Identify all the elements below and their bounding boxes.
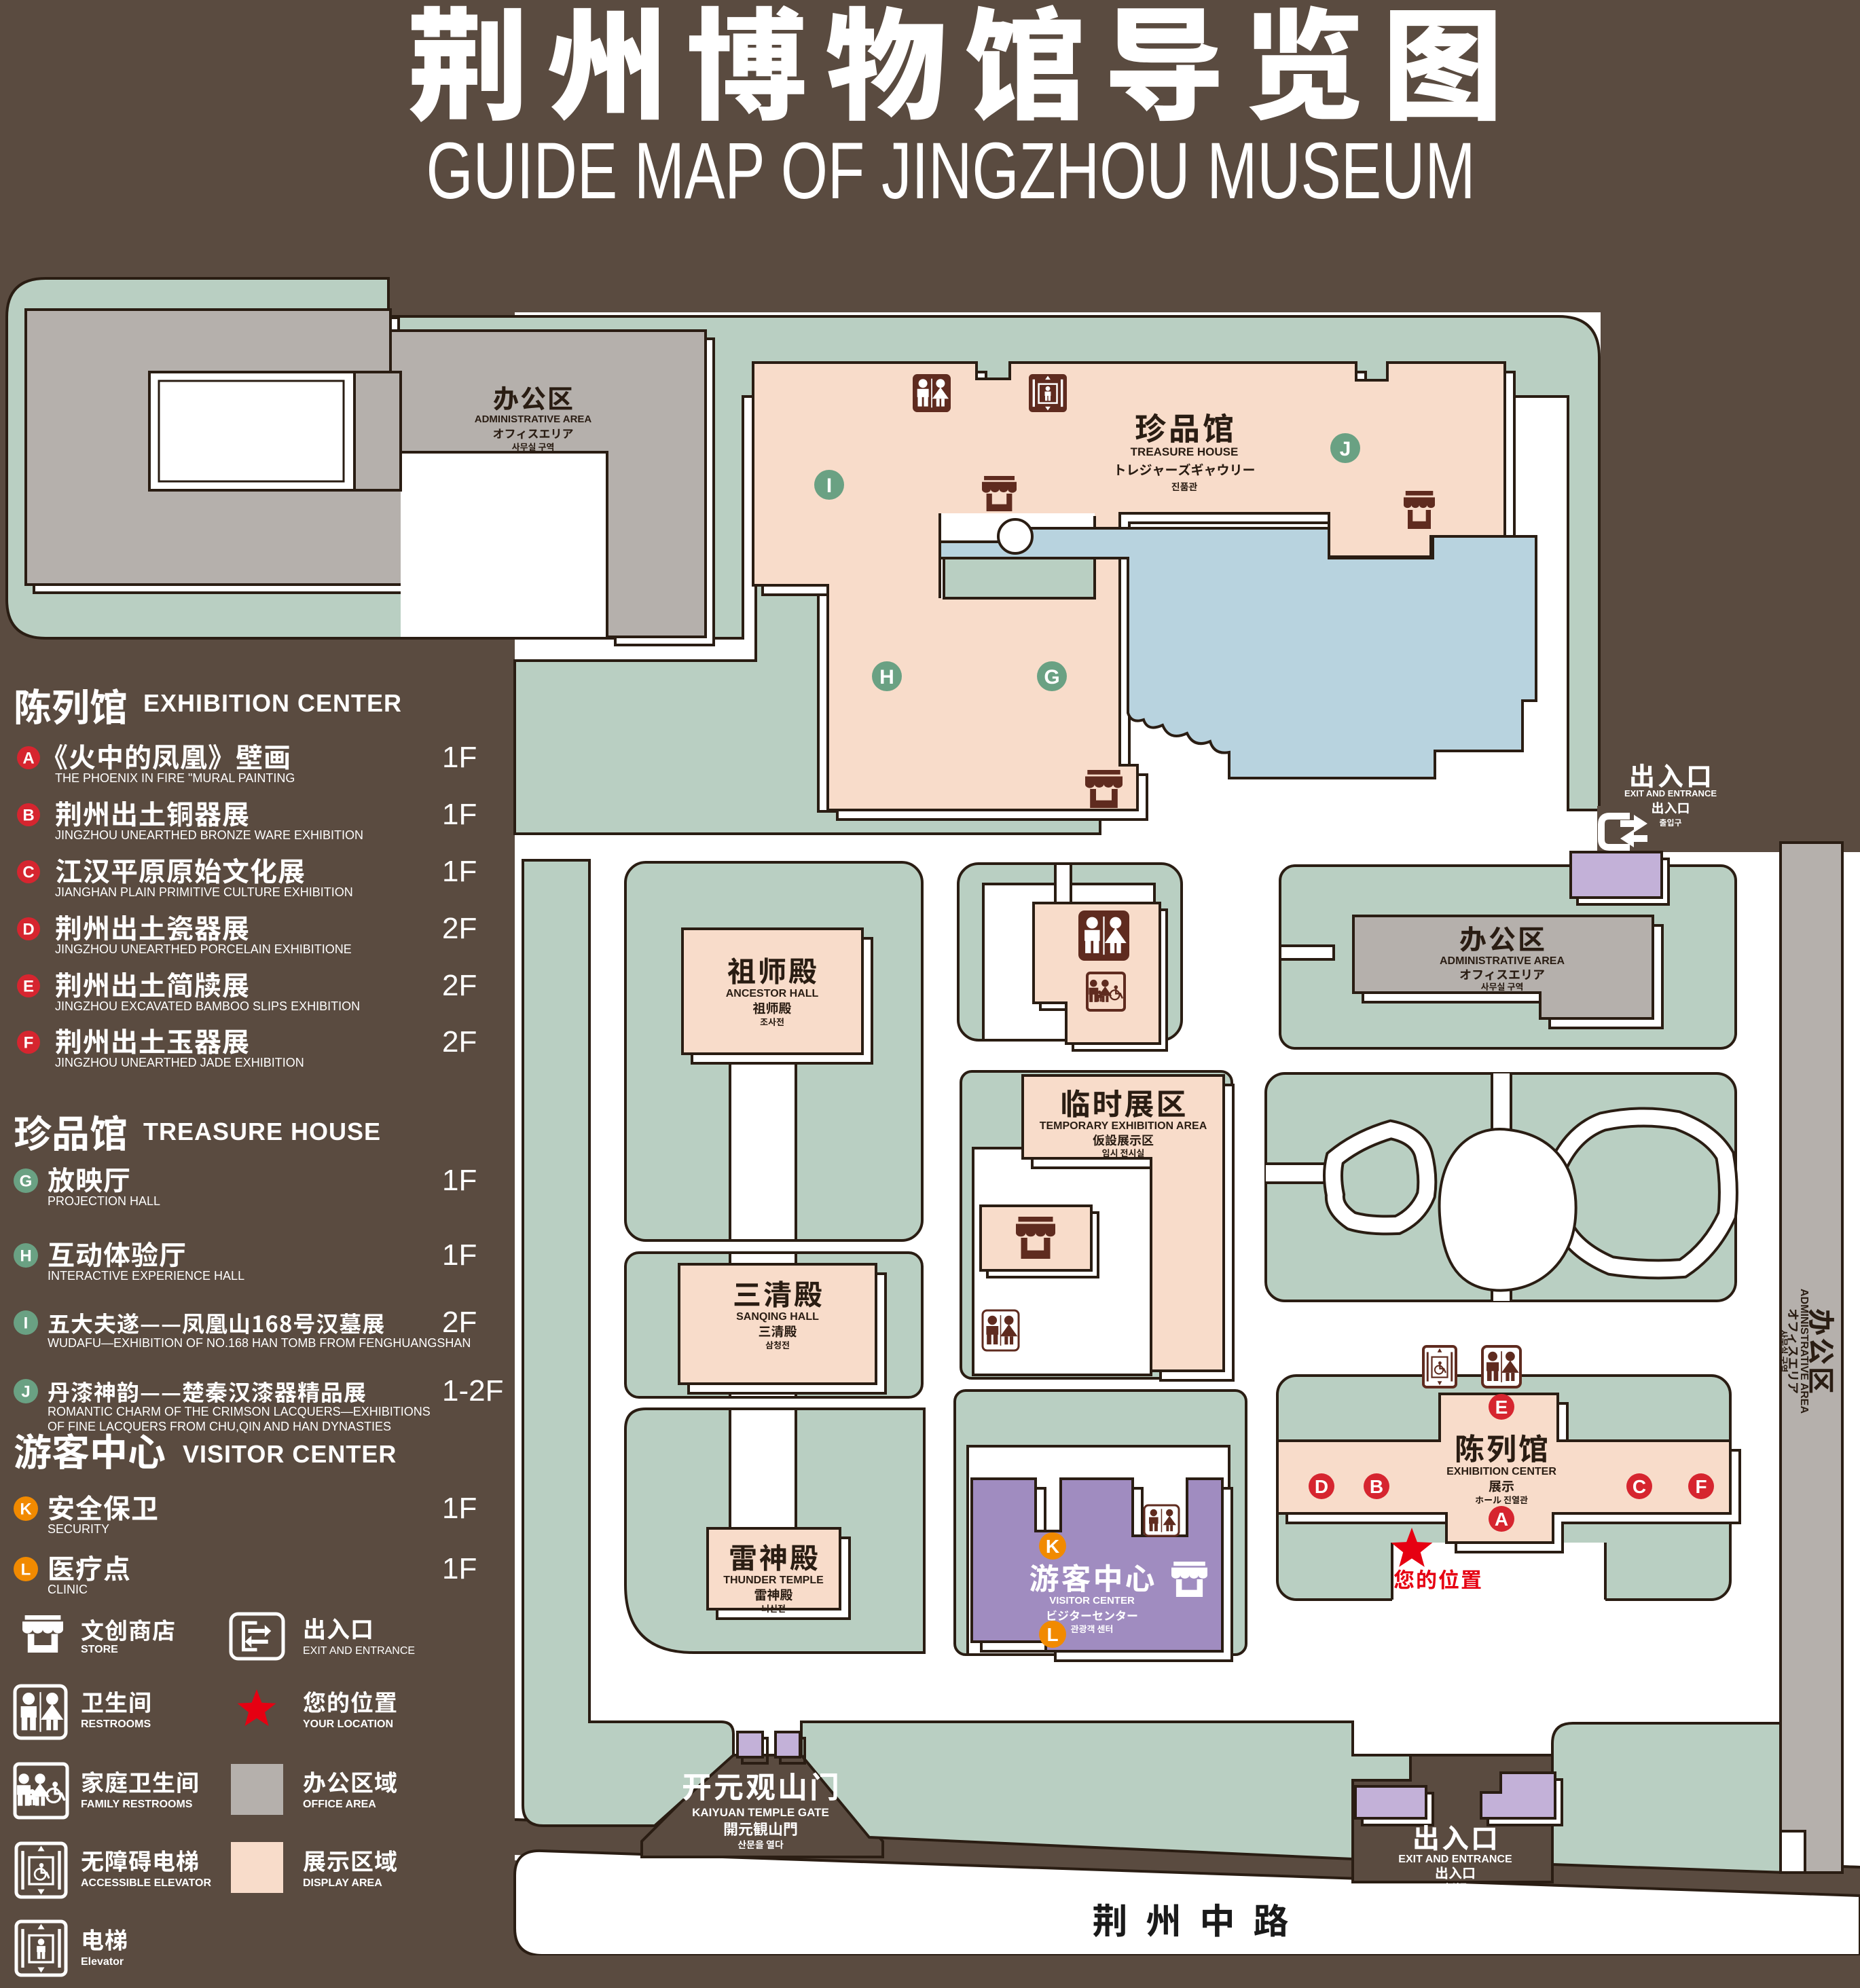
svg-text:E: E xyxy=(23,978,34,996)
svg-text:I: I xyxy=(826,475,832,497)
svg-text:YOUR LOCATION: YOUR LOCATION xyxy=(303,1718,393,1730)
svg-text:J: J xyxy=(21,1383,30,1401)
svg-text:ADMINISTRATIVE AREA: ADMINISTRATIVE AREA xyxy=(1798,1289,1810,1414)
svg-text:ROMANTIC CHARM OF THE CRIMSON: ROMANTIC CHARM OF THE CRIMSON LACQUERS—E… xyxy=(48,1405,431,1418)
svg-text:PROJECTION HALL: PROJECTION HALL xyxy=(48,1194,160,1208)
svg-text:JINGZHOU UNEARTHED JADE EXHIBI: JINGZHOU UNEARTHED JADE EXHIBITION xyxy=(55,1056,304,1069)
svg-text:H: H xyxy=(879,666,894,688)
svg-text:OFFICE AREA: OFFICE AREA xyxy=(303,1799,376,1810)
svg-text:1F: 1F xyxy=(442,741,477,774)
svg-text:1F: 1F xyxy=(442,1552,477,1585)
svg-text:EXHIBITION CENTER: EXHIBITION CENTER xyxy=(143,689,402,717)
svg-text:G: G xyxy=(20,1173,33,1191)
svg-text:K: K xyxy=(20,1501,32,1519)
svg-text:E: E xyxy=(1495,1397,1508,1418)
svg-text:EXIT AND ENTRANCE: EXIT AND ENTRANCE xyxy=(1624,788,1717,798)
svg-text:1F: 1F xyxy=(442,855,477,888)
svg-text:JINGZHOU UNEARTHED PORCELAIN E: JINGZHOU UNEARTHED PORCELAIN EXHIBITIONE xyxy=(55,942,352,956)
svg-text:Elevator: Elevator xyxy=(81,1956,124,1968)
svg-text:J: J xyxy=(1340,438,1351,460)
svg-text:1F: 1F xyxy=(442,1238,477,1272)
svg-text:K: K xyxy=(1046,1536,1059,1557)
svg-text:THE PHOENIX IN FIRE "MURAL PAI: THE PHOENIX IN FIRE "MURAL PAINTING xyxy=(55,771,295,785)
svg-text:EXIT AND ENTRANCE: EXIT AND ENTRANCE xyxy=(303,1645,415,1657)
svg-text:C: C xyxy=(22,864,34,882)
svg-text:WUDAFU—EXHIBITION OF NO.168 HA: WUDAFU—EXHIBITION OF NO.168 HAN TOMB FRO… xyxy=(48,1336,471,1350)
svg-text:1-2F: 1-2F xyxy=(442,1374,503,1407)
svg-text:I: I xyxy=(24,1314,29,1333)
svg-text:SANQING HALL: SANQING HALL xyxy=(736,1311,819,1323)
svg-text:1F: 1F xyxy=(442,1164,477,1197)
svg-text:2F: 2F xyxy=(442,969,477,1002)
svg-text:VISITOR CENTER: VISITOR CENTER xyxy=(1049,1595,1135,1606)
svg-text:B: B xyxy=(22,807,34,825)
svg-text:STORE: STORE xyxy=(81,1644,118,1655)
svg-text:1F: 1F xyxy=(442,798,477,831)
svg-text:FAMILY RESTROOMS: FAMILY RESTROOMS xyxy=(81,1799,193,1810)
svg-text:TEMPORARY EXHIBITION AREA: TEMPORARY EXHIBITION AREA xyxy=(1040,1120,1207,1132)
svg-text:SECURITY: SECURITY xyxy=(48,1522,109,1536)
svg-text:2F: 2F xyxy=(442,912,477,945)
svg-text:TREASURE HOUSE: TREASURE HOUSE xyxy=(1131,445,1239,458)
svg-text:L: L xyxy=(1046,1624,1058,1645)
svg-text:L: L xyxy=(21,1561,31,1579)
svg-text:DISPLAY AREA: DISPLAY AREA xyxy=(303,1877,382,1889)
svg-text:ADMINISTRATIVE AREA: ADMINISTRATIVE AREA xyxy=(1440,955,1565,967)
svg-text:B: B xyxy=(1370,1476,1383,1497)
svg-text:EXIT AND ENTRANCE: EXIT AND ENTRANCE xyxy=(1398,1854,1512,1865)
svg-text:JINGZHOU EXCAVATED BAMBOO SLIP: JINGZHOU EXCAVATED BAMBOO SLIPS EXHIBITI… xyxy=(55,999,360,1013)
svg-text:A: A xyxy=(1495,1509,1508,1530)
svg-text:OF FINE LACQUERS FROM CHU,QIN: OF FINE LACQUERS FROM CHU,QIN AND HAN DY… xyxy=(48,1420,391,1433)
svg-text:F: F xyxy=(1695,1476,1707,1497)
svg-text:EXHIBITION CENTER: EXHIBITION CENTER xyxy=(1446,1466,1556,1477)
svg-text:RESTROOMS: RESTROOMS xyxy=(81,1718,151,1730)
svg-text:H: H xyxy=(20,1247,31,1266)
svg-text:F: F xyxy=(24,1034,34,1052)
svg-text:1F: 1F xyxy=(442,1492,477,1525)
svg-text:INTERACTIVE EXPERIENCE HALL: INTERACTIVE EXPERIENCE HALL xyxy=(48,1269,244,1283)
svg-text:CLINIC: CLINIC xyxy=(48,1583,88,1596)
svg-text:2F: 2F xyxy=(442,1025,477,1059)
svg-text:ADMINISTRATIVE AREA: ADMINISTRATIVE AREA xyxy=(475,413,592,425)
svg-text:THUNDER TEMPLE: THUNDER TEMPLE xyxy=(723,1575,824,1586)
svg-text:D: D xyxy=(1315,1476,1328,1497)
svg-text:VISITOR CENTER: VISITOR CENTER xyxy=(183,1440,397,1468)
svg-text:D: D xyxy=(22,921,34,939)
svg-text:JINGZHOU UNEARTHED BRONZE WARE: JINGZHOU UNEARTHED BRONZE WARE EXHIBITIO… xyxy=(55,828,363,842)
svg-text:A: A xyxy=(22,750,34,768)
svg-text:KAIYUAN TEMPLE GATE: KAIYUAN TEMPLE GATE xyxy=(692,1806,829,1819)
svg-text:ACCESSIBLE ELEVATOR: ACCESSIBLE ELEVATOR xyxy=(81,1877,211,1889)
svg-text:G: G xyxy=(1044,666,1059,688)
svg-text:GUIDE MAP OF JINGZHOU MUSEUM: GUIDE MAP OF JINGZHOU MUSEUM xyxy=(426,126,1476,216)
svg-text:TREASURE HOUSE: TREASURE HOUSE xyxy=(143,1118,381,1145)
svg-text:C: C xyxy=(1633,1476,1646,1497)
svg-text:2F: 2F xyxy=(442,1306,477,1339)
svg-text:JIANGHAN PLAIN PRIMITIVE CULTU: JIANGHAN PLAIN PRIMITIVE CULTURE EXHIBIT… xyxy=(55,885,353,899)
svg-text:ANCESTOR HALL: ANCESTOR HALL xyxy=(726,988,819,999)
